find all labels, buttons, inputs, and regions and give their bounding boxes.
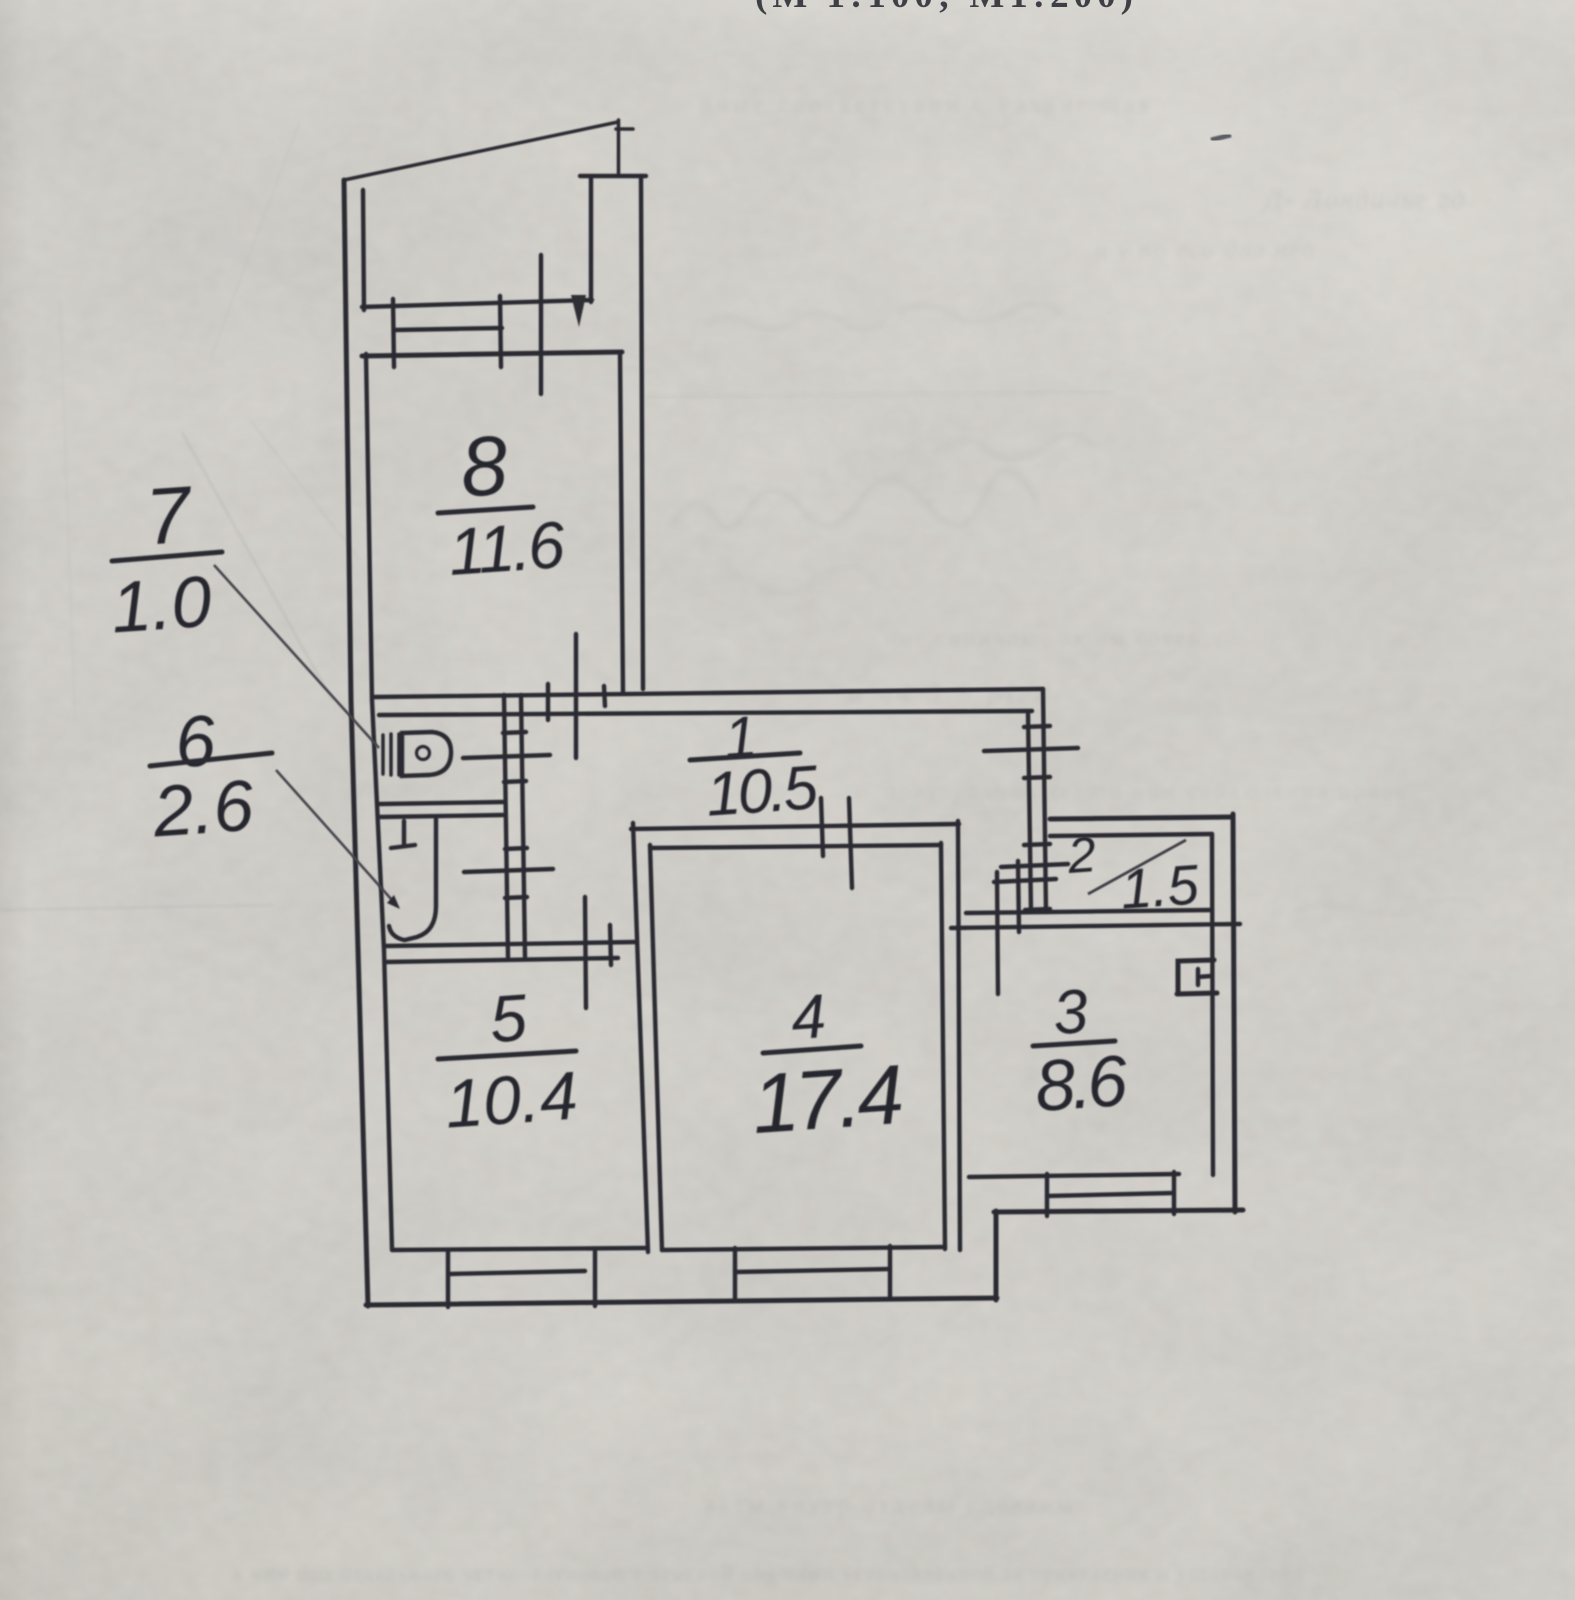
svg-text:2.6: 2.6 xyxy=(150,766,257,853)
svg-text:1.5: 1.5 xyxy=(1119,852,1202,920)
svg-text:5: 5 xyxy=(487,980,529,1056)
svg-text:8: 8 xyxy=(457,418,510,515)
svg-text:17.4: 17.4 xyxy=(749,1047,904,1151)
svg-text:в чим под отдельного установле: в чим под отдельного установленного т за… xyxy=(233,1563,1304,1585)
svg-text:нне синичные ак нм совек: нне синичные ак нм совек xyxy=(885,625,1202,650)
svg-text:3: 3 xyxy=(1051,977,1090,1048)
svg-text:7: 7 xyxy=(143,469,196,561)
svg-text:4: 4 xyxy=(789,982,828,1053)
svg-text:1.0: 1.0 xyxy=(109,562,214,649)
svg-text:акты внутр отделы сделаны: акты внутр отделы сделаны xyxy=(705,1492,1077,1517)
svg-text:(М 1:100; М1:200): (М 1:100; М1:200) xyxy=(755,0,1138,16)
svg-text:2: 2 xyxy=(1065,826,1098,884)
svg-text:пригородное дело в ним соблюде: пригородное дело в ним соблюдения приве xyxy=(885,781,1409,803)
svg-text:10.4: 10.4 xyxy=(443,1058,580,1143)
svg-text:Д- Лондичье гд: Д- Лондичье гд xyxy=(1262,184,1466,214)
svg-text:и у по есо дал нео: и у по есо дал нео xyxy=(1095,237,1316,264)
svg-text:8.6: 8.6 xyxy=(1033,1041,1131,1127)
svg-text:11.6: 11.6 xyxy=(446,507,567,589)
svg-text:нные соответствии с Разриг щая: нные соответствии с Разриг щая xyxy=(700,92,1153,117)
svg-text:10.5: 10.5 xyxy=(704,753,821,830)
svg-text:м ч4 5 9 рled: м ч4 5 9 рled xyxy=(844,679,1054,709)
